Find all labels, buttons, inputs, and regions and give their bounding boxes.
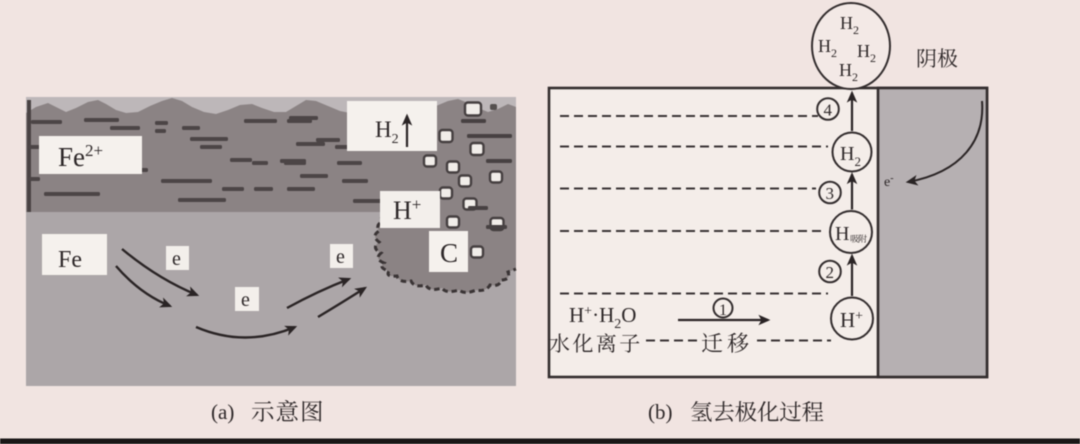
svg-text:C: C (440, 238, 458, 268)
svg-text:H: H (835, 223, 849, 245)
svg-text:e: e (241, 289, 250, 311)
svg-text:2: 2 (826, 263, 835, 282)
svg-text:4: 4 (824, 101, 833, 120)
svg-text:(a): (a) (211, 400, 234, 424)
svg-text:(b): (b) (648, 400, 673, 424)
svg-text:Fe: Fe (58, 247, 82, 273)
svg-text:e: e (336, 246, 345, 268)
svg-text:e: e (172, 248, 181, 270)
svg-text:3: 3 (826, 184, 835, 203)
svg-text:1: 1 (719, 302, 727, 319)
